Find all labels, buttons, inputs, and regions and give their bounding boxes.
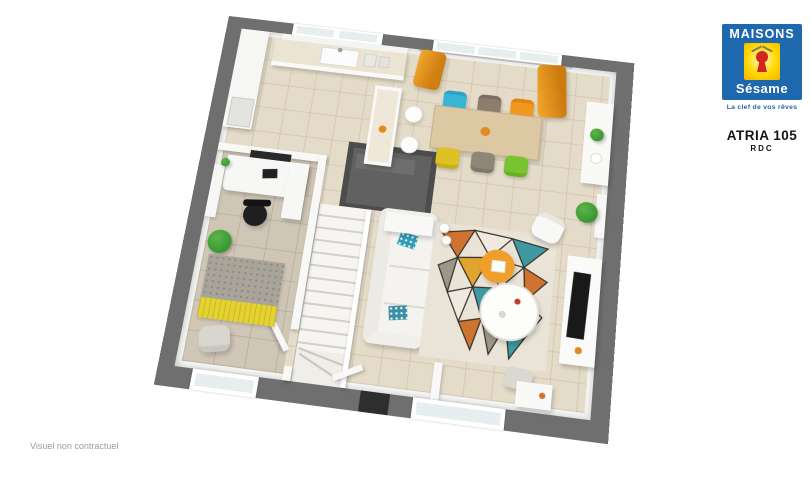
page: { "page": { "background": "#ffffff" }, "… xyxy=(0,0,811,480)
kettle xyxy=(378,56,390,68)
front-door xyxy=(358,390,390,415)
throw-pillow-teal xyxy=(388,305,407,320)
disclaimer-text: Visuel non contractuel xyxy=(30,441,118,451)
floor-plan xyxy=(154,16,635,444)
logo-blue-square: MAISONS Sésame xyxy=(722,24,802,100)
floor-level-label: RDC xyxy=(700,144,811,153)
sideboard xyxy=(580,101,614,185)
dining-chair-green xyxy=(503,155,529,178)
curtain-right xyxy=(537,64,566,118)
plan-header: ATRIA 105 RDC xyxy=(700,128,811,153)
pouf-tray xyxy=(491,260,506,273)
logo-yellow-square xyxy=(744,43,780,80)
coffee-machine xyxy=(363,53,377,67)
office-chair-back xyxy=(243,199,271,206)
model-name: ATRIA 105 xyxy=(700,128,811,143)
laptop xyxy=(262,169,277,178)
office-armchair xyxy=(199,324,231,353)
brand-logo: MAISONS Sésame La clef de vos rêves xyxy=(714,24,810,111)
logo-maisons-text: MAISONS xyxy=(722,27,802,41)
dining-chair-gray xyxy=(470,151,496,174)
logo-tagline: La clef de vos rêves xyxy=(714,104,810,111)
logo-sesame-text: Sésame xyxy=(722,81,802,96)
dining-chair-yellow xyxy=(435,147,461,170)
low-cabinet xyxy=(515,381,553,411)
